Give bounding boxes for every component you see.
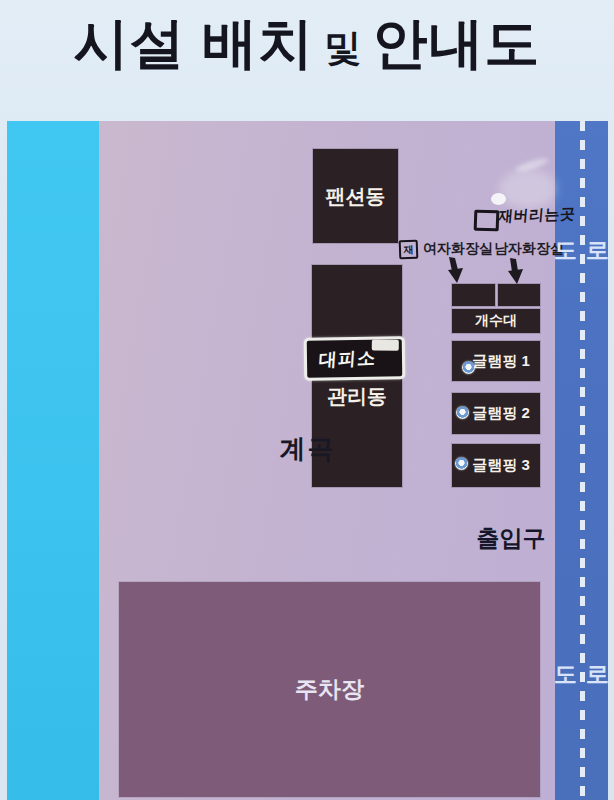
ash-disposal-label: 재버리는곳 bbox=[497, 205, 576, 227]
parking-lot-label: 주차장 bbox=[295, 674, 364, 705]
title-part-2: 및 bbox=[324, 23, 362, 73]
parking-lot-block: 주차장 bbox=[119, 582, 540, 797]
pension-building-block: 팬션동 bbox=[313, 149, 398, 243]
valley-label: 계곡 bbox=[7, 432, 608, 467]
sink-block: 개수대 bbox=[452, 309, 540, 333]
road-label-bottom: 도로 bbox=[555, 659, 608, 690]
page-title: 시설 배치 및 안내도 bbox=[0, 2, 614, 86]
sink-label: 개수대 bbox=[475, 312, 517, 330]
title-part-1: 시설 배치 bbox=[74, 7, 314, 81]
shelter-handwritten-sign: 대피소 bbox=[304, 336, 406, 380]
road-label-top: 도로 bbox=[555, 235, 608, 266]
facility-guide-sign: 시설 배치 및 안내도 도로 도로 팬션동 관리동 대피소 bbox=[0, 0, 614, 800]
men-restroom-block bbox=[498, 284, 540, 306]
women-restroom-label: 여자화장실 bbox=[423, 240, 493, 258]
round-sticker-icon bbox=[462, 361, 475, 374]
site-map: 도로 도로 팬션동 관리동 대피소 개수대 여자화장실 남자화장실 bbox=[7, 121, 608, 800]
glamping-1-block: 글램핑 1 bbox=[452, 341, 540, 381]
paint-smudge-dot bbox=[491, 193, 506, 205]
round-sticker-icon bbox=[456, 406, 469, 419]
ash-bin-icon bbox=[474, 210, 500, 232]
arrow-down-icon bbox=[445, 257, 465, 284]
management-building-label: 관리동 bbox=[312, 383, 402, 410]
ash-marker-label: 재 bbox=[403, 242, 413, 256]
glamping-2-block: 글램핑 2 bbox=[452, 393, 540, 434]
title-part-3: 안내도 bbox=[372, 7, 540, 81]
pension-building-label: 팬션동 bbox=[326, 183, 386, 210]
entrance-label: 출입구 bbox=[468, 523, 554, 554]
ash-marker-icon: 재 bbox=[399, 240, 419, 260]
glamping-2-label: 글램핑 2 bbox=[462, 404, 530, 423]
paint-smudge-wash bbox=[499, 169, 557, 209]
shelter-sign-label: 대피소 bbox=[306, 345, 377, 372]
arrow-down-icon bbox=[505, 258, 525, 285]
women-restroom-block bbox=[452, 284, 495, 306]
